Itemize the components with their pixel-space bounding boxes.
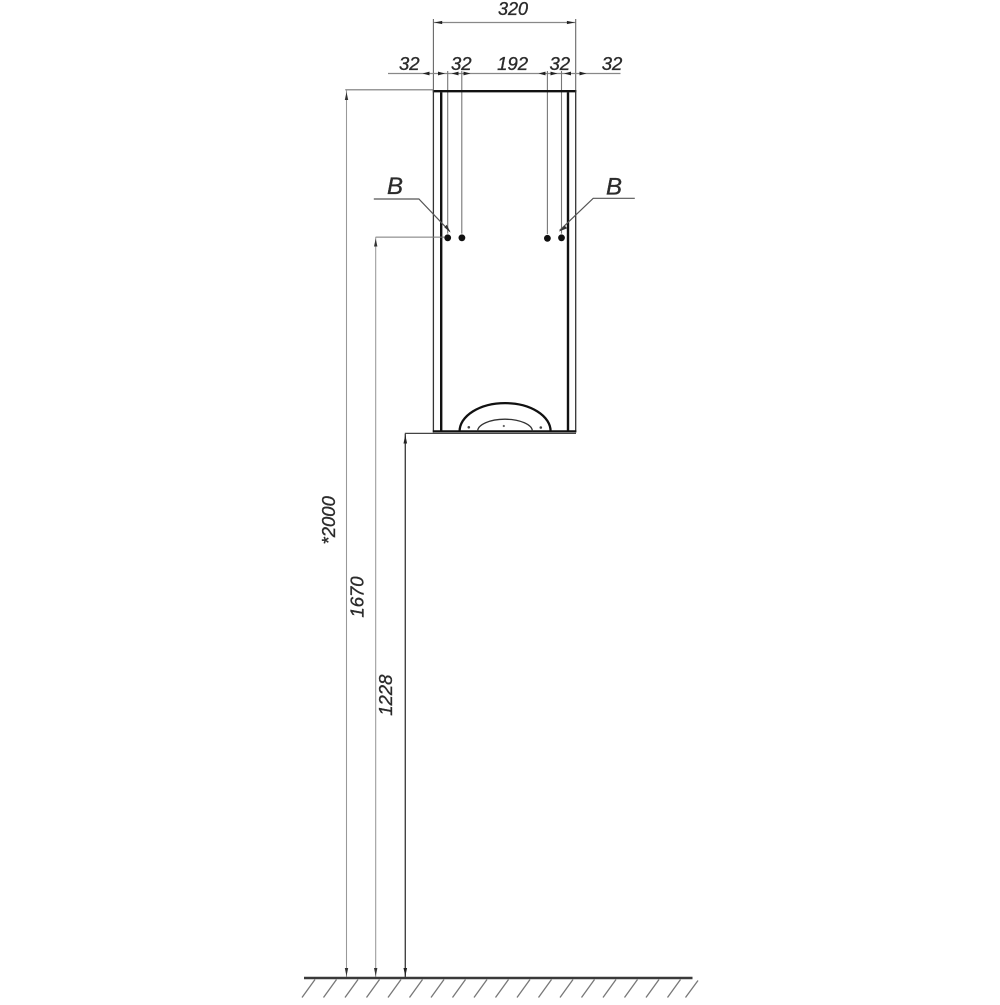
svg-text:*2000: *2000 <box>318 495 339 544</box>
svg-text:192: 192 <box>497 53 529 74</box>
svg-text:32: 32 <box>550 53 571 74</box>
svg-text:В: В <box>387 173 403 200</box>
svg-text:В: В <box>606 174 622 201</box>
svg-text:1670: 1670 <box>346 576 367 618</box>
svg-text:32: 32 <box>451 53 472 74</box>
svg-text:32: 32 <box>602 53 623 74</box>
svg-text:1228: 1228 <box>375 674 396 716</box>
svg-text:32: 32 <box>399 53 420 74</box>
svg-text:320: 320 <box>498 0 528 19</box>
